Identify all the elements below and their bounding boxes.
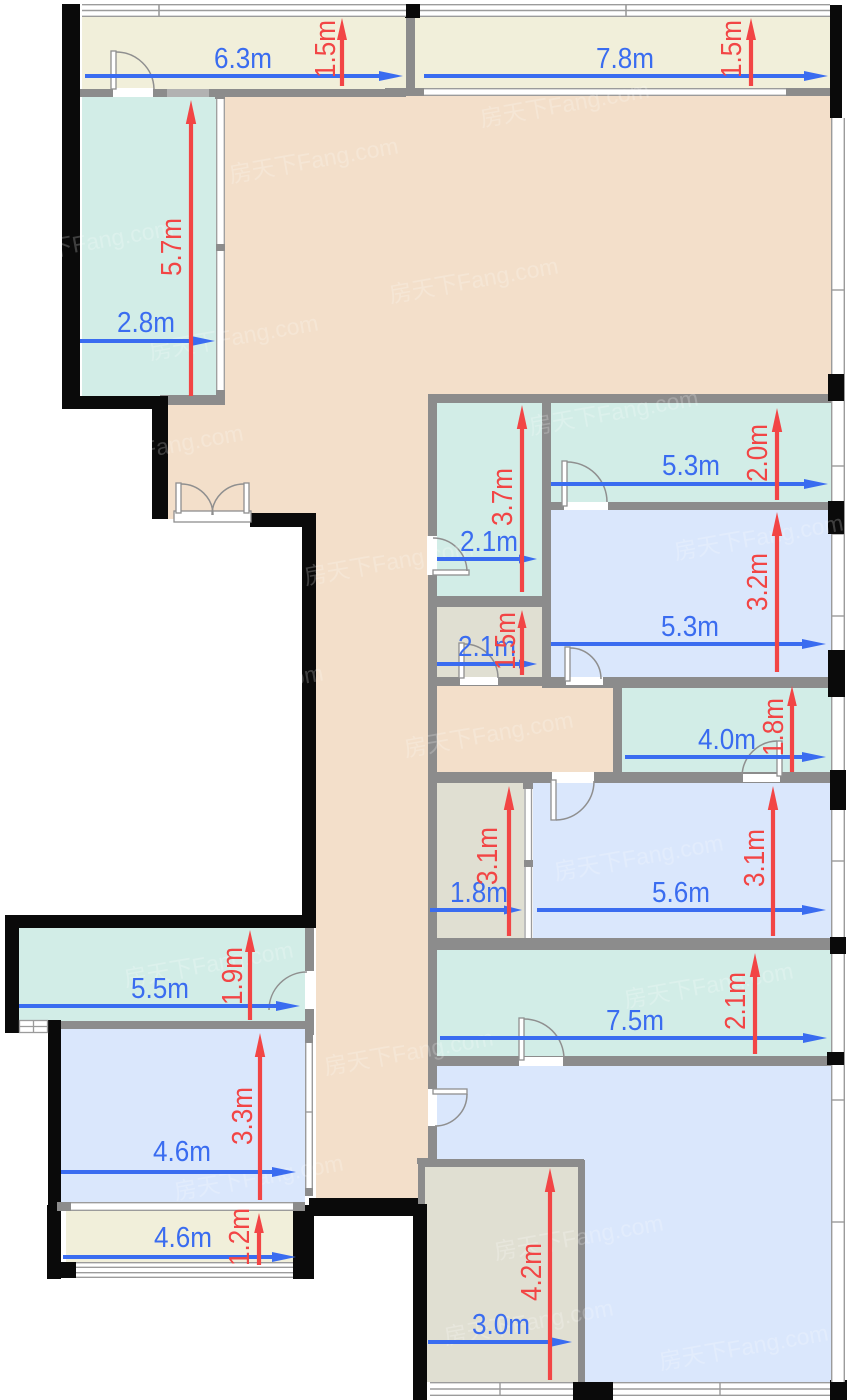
svg-text:3.2m: 3.2m [742,553,774,611]
svg-text:6.3m: 6.3m [214,43,272,75]
svg-text:5.3m: 5.3m [661,611,719,643]
svg-text:2.0m: 2.0m [742,424,774,482]
svg-text:2.1m: 2.1m [460,526,518,558]
svg-text:7.5m: 7.5m [606,1005,664,1037]
svg-text:1.8m: 1.8m [758,698,790,756]
svg-text:4.6m: 4.6m [154,1222,212,1254]
svg-text:1.2m: 1.2m [224,1208,256,1266]
svg-text:5.3m: 5.3m [662,450,720,482]
svg-text:3.1m: 3.1m [739,829,771,887]
svg-text:3.3m: 3.3m [227,1087,259,1145]
svg-text:3.1m: 3.1m [472,827,504,885]
svg-text:7.8m: 7.8m [596,43,654,75]
svg-text:5.7m: 5.7m [156,218,188,276]
svg-text:1.9m: 1.9m [217,947,249,1005]
svg-text:1.5m: 1.5m [716,20,748,78]
svg-text:1.5m: 1.5m [490,612,522,670]
svg-text:5.6m: 5.6m [652,877,710,909]
svg-text:1.5m: 1.5m [310,20,342,78]
svg-text:5.5m: 5.5m [131,973,189,1005]
svg-text:2.1m: 2.1m [720,972,752,1030]
svg-text:2.8m: 2.8m [117,307,175,339]
svg-text:4.2m: 4.2m [516,1243,548,1301]
svg-text:4.6m: 4.6m [153,1136,211,1168]
svg-text:4.0m: 4.0m [698,724,756,756]
svg-text:3.0m: 3.0m [472,1309,530,1341]
svg-text:3.7m: 3.7m [487,468,519,526]
